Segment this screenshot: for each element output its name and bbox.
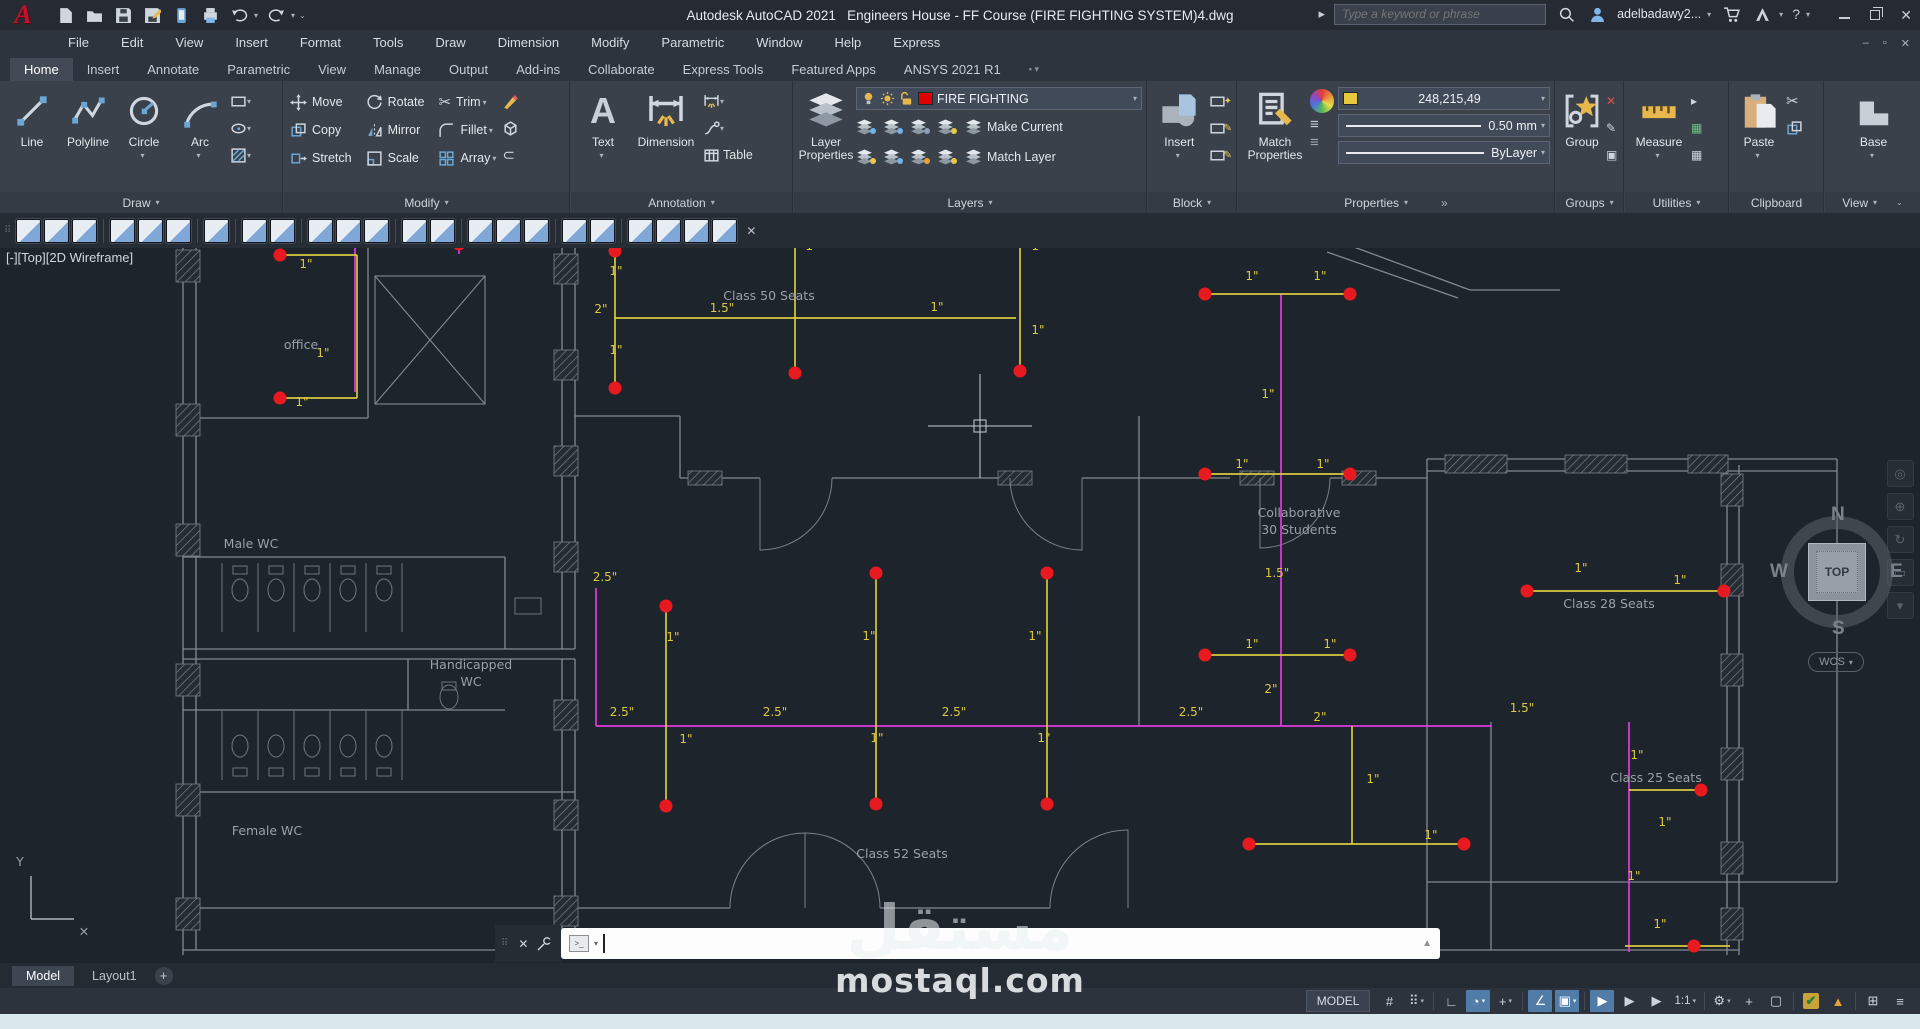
docked-toolbar: ⠿ ✕ bbox=[0, 213, 1920, 248]
menu-edit[interactable]: Edit bbox=[105, 30, 159, 56]
status-toggle-button[interactable]: + bbox=[1737, 990, 1761, 1012]
wall-pier-hatch bbox=[1721, 908, 1743, 940]
toolbar-icon-button[interactable] bbox=[496, 219, 521, 243]
floor-plan-drawing: 1"1"1"1"2"1"21.5"1"1"1"1"1"1"1"1"1"1.5"1… bbox=[0, 248, 1920, 963]
toilet-bowl bbox=[340, 579, 356, 601]
pipe-size-label: 1" bbox=[862, 629, 875, 643]
menu-modify[interactable]: Modify bbox=[575, 30, 645, 56]
layout-tab-bar: Model Layout1 + bbox=[0, 963, 1920, 988]
pipe-size-label: 1" bbox=[299, 257, 312, 271]
modify-panel-footer[interactable]: Modify▾ bbox=[284, 192, 569, 213]
linetype-list-icon[interactable]: ≡ bbox=[1310, 136, 1334, 149]
user-avatar-icon[interactable] bbox=[1586, 3, 1608, 25]
annotation-panel-footer[interactable]: Annotation▾ bbox=[571, 192, 792, 213]
plot-button[interactable] bbox=[199, 4, 221, 26]
room-label: office bbox=[284, 337, 319, 352]
toolbar-icon-button[interactable] bbox=[270, 219, 295, 243]
ribbon-tab-ansys-2021-r1[interactable]: ANSYS 2021 R1 bbox=[890, 58, 1015, 81]
sprinkler-head bbox=[274, 249, 287, 262]
layer-state-icon[interactable] bbox=[937, 147, 957, 167]
rotate-button[interactable]: Rotate bbox=[366, 89, 425, 115]
sprinkler-head bbox=[789, 367, 802, 380]
trim-icon: ✂ bbox=[438, 95, 451, 110]
sprinkler-head bbox=[1243, 838, 1256, 851]
toolbar-icon-button[interactable] bbox=[402, 219, 427, 243]
sprinkler-head bbox=[1718, 585, 1731, 598]
door-swing-arc bbox=[1050, 830, 1128, 908]
redo-button[interactable] bbox=[265, 4, 287, 26]
save-button[interactable] bbox=[112, 4, 134, 26]
wall-line bbox=[1335, 248, 1470, 290]
ucs-x-mark: ✕ bbox=[79, 924, 89, 939]
new-file-button[interactable] bbox=[54, 4, 76, 26]
ribbon-tab-view[interactable]: View bbox=[304, 58, 360, 81]
toolbar-icon-button[interactable] bbox=[468, 219, 493, 243]
toolbar-icon-button[interactable] bbox=[656, 219, 681, 243]
move-button[interactable]: Move bbox=[290, 89, 352, 115]
qat-customize-dropdown[interactable]: ⌄ bbox=[299, 11, 306, 20]
infocenter-collapse-icon[interactable]: ▸ bbox=[1319, 6, 1326, 22]
linetype-combo[interactable]: ByLayer ▾ bbox=[1338, 141, 1550, 164]
room-label: Male WC bbox=[224, 536, 279, 551]
sprinkler-head bbox=[1014, 365, 1027, 378]
status-toggle-button[interactable]: ▶ bbox=[1617, 990, 1641, 1012]
toolbar-icon-button[interactable] bbox=[242, 219, 267, 243]
wall-pier-hatch bbox=[176, 664, 200, 696]
arc-button[interactable]: Arc▾ bbox=[174, 85, 226, 160]
wall-pier-hatch bbox=[1445, 455, 1507, 473]
toolbar-icon-button[interactable] bbox=[138, 219, 163, 243]
sprinkler-head bbox=[1688, 940, 1701, 953]
table-button[interactable]: Table bbox=[703, 143, 753, 167]
clipboard-panel: Paste▾ ✂ Clipboard bbox=[1730, 81, 1824, 213]
lineweight-preview bbox=[1346, 125, 1481, 127]
match-layer-button[interactable]: Match Layer bbox=[965, 144, 1056, 170]
pipe-size-label: 1" bbox=[1313, 269, 1326, 283]
block-panel: Insert▾ ✦✎✎ Block▾ bbox=[1148, 81, 1237, 213]
properties-panel-footer[interactable]: Properties▾» bbox=[1238, 192, 1554, 213]
pipe-size-label: 1" bbox=[1658, 815, 1671, 829]
pipe-size-label: 1" bbox=[1424, 828, 1437, 842]
ribbon-tab-add-ins[interactable]: Add-ins bbox=[502, 58, 574, 81]
menu-format[interactable]: Format bbox=[284, 30, 357, 56]
sprinkler-head bbox=[1041, 567, 1054, 580]
cut-clip-button[interactable]: ✂ bbox=[1786, 89, 1803, 113]
hatch-button[interactable]: ▾ bbox=[230, 143, 251, 167]
recent-commands-icon[interactable]: >_ bbox=[569, 935, 589, 952]
group-button[interactable]: Group bbox=[1562, 85, 1602, 149]
base-button[interactable]: Base▾ bbox=[1848, 85, 1900, 160]
wall-pier-hatch bbox=[1721, 842, 1743, 874]
insert-block-button[interactable]: Insert▾ bbox=[1154, 85, 1205, 160]
wall-pier-hatch bbox=[176, 250, 200, 282]
block-tool-button[interactable]: ✎ bbox=[1209, 143, 1232, 167]
menu-view[interactable]: View bbox=[159, 30, 219, 56]
layer-state-icon[interactable] bbox=[910, 117, 930, 137]
pipe-size-label: 1" bbox=[1627, 869, 1640, 883]
pipe-size-label: 2.5" bbox=[1179, 705, 1204, 719]
menu-window[interactable]: Window bbox=[740, 30, 818, 56]
room-label: WC bbox=[460, 674, 481, 689]
wall-pier-hatch bbox=[554, 350, 578, 380]
toilet-tank bbox=[269, 566, 283, 574]
toolbar-icon-button[interactable] bbox=[44, 219, 69, 243]
leader-button[interactable]: ▾ bbox=[703, 116, 753, 140]
room-label: 30 Students bbox=[1261, 522, 1337, 537]
ribbon-tab-parametric[interactable]: Parametric bbox=[213, 58, 304, 81]
copy-button[interactable]: Copy bbox=[290, 117, 352, 143]
wall-pier-hatch bbox=[176, 524, 200, 556]
pipe-size-label: 1" bbox=[679, 732, 692, 746]
layer-state-icon[interactable] bbox=[856, 147, 876, 167]
toolbar-icon-button[interactable] bbox=[430, 219, 455, 243]
toolbar-icon-button[interactable] bbox=[308, 219, 333, 243]
line-button[interactable]: Line bbox=[6, 85, 58, 149]
menu-draw[interactable]: Draw bbox=[419, 30, 481, 56]
draw-panel: LinePolylineCircle▾Arc▾▾▾▾ Draw▾ bbox=[0, 81, 283, 213]
status-toggle-button[interactable]: 1:1▾ bbox=[1671, 990, 1699, 1012]
menu-insert[interactable]: Insert bbox=[219, 30, 284, 56]
doc-close-icon[interactable]: ✕ bbox=[1901, 37, 1910, 50]
ribbon-tab-output[interactable]: Output bbox=[435, 58, 502, 81]
sprinkler-head bbox=[453, 248, 466, 251]
help-icon[interactable]: ? bbox=[1792, 6, 1800, 22]
doc-restore-icon[interactable]: ▫ bbox=[1883, 37, 1887, 49]
menu-express[interactable]: Express bbox=[877, 30, 956, 56]
ribbon-tab-express-tools[interactable]: Express Tools bbox=[669, 58, 778, 81]
help-dropdown[interactable]: ▾ bbox=[1806, 10, 1810, 19]
layer-properties-button[interactable]: LayerProperties bbox=[800, 85, 852, 162]
toolbar-grip[interactable]: ⠿ bbox=[4, 225, 10, 236]
navbar-tool-button[interactable]: ◎ bbox=[1887, 460, 1914, 487]
wall-pier-hatch bbox=[554, 800, 578, 830]
utility-tool-button[interactable]: ▦ bbox=[1691, 116, 1702, 140]
sprinkler-head bbox=[1199, 288, 1212, 301]
wall-pier-hatch bbox=[1721, 654, 1743, 686]
layer-state-icon[interactable] bbox=[910, 147, 930, 167]
sprinkler-head bbox=[870, 567, 883, 580]
pipe-size-label: 1" bbox=[609, 264, 622, 278]
door-swing-arc bbox=[730, 833, 805, 908]
app-store-cart-icon[interactable] bbox=[1720, 3, 1742, 25]
room-label: Class 28 Seats bbox=[1563, 596, 1654, 611]
erase-button[interactable] bbox=[502, 89, 519, 113]
toolbar-close-icon[interactable]: ✕ bbox=[746, 224, 756, 238]
block-tool-button[interactable]: ✦ bbox=[1209, 89, 1232, 113]
toilet-tank bbox=[233, 566, 247, 574]
tab-layout1[interactable]: Layout1 bbox=[78, 966, 150, 986]
mirror-button[interactable]: Mirror bbox=[366, 117, 425, 143]
toolbar-icon-button[interactable] bbox=[72, 219, 97, 243]
account-dropdown[interactable]: ▾ bbox=[1707, 10, 1711, 19]
status-toggle-button[interactable]: ▣▾ bbox=[1555, 990, 1579, 1012]
rect-button[interactable]: ▾ bbox=[230, 89, 251, 113]
text-button[interactable]: A Text▾ bbox=[577, 85, 629, 160]
linear-dimension-button[interactable]: ▾ bbox=[703, 89, 753, 113]
explode-button[interactable] bbox=[502, 116, 519, 140]
door-swing-arc bbox=[1010, 478, 1082, 550]
polyline-icon bbox=[70, 88, 106, 134]
room-label: Handicapped bbox=[430, 657, 512, 672]
ribbon-display-toggle[interactable]: ▪ ▾ bbox=[1025, 58, 1043, 81]
status-toggle-button[interactable]: ▲ bbox=[1826, 990, 1850, 1012]
wall-pier-hatch bbox=[554, 446, 578, 476]
toilet-tank bbox=[305, 768, 319, 776]
scale-button[interactable]: Scale bbox=[366, 145, 425, 171]
make-current-button[interactable]: Make Current bbox=[965, 114, 1063, 140]
linetype-preview bbox=[1346, 152, 1484, 154]
command-line-bar: ⠿ ✕ >_ ▾ ▲ bbox=[495, 925, 1440, 962]
toolbar-icon-button[interactable] bbox=[684, 219, 709, 243]
toolbar-icon-button[interactable] bbox=[524, 219, 549, 243]
command-input-field[interactable]: >_ ▾ ▲ bbox=[561, 928, 1440, 959]
save-as-button[interactable] bbox=[141, 4, 163, 26]
pipe-size-label: 1" bbox=[1366, 772, 1379, 786]
pipe-size-label: 1" bbox=[1574, 561, 1587, 575]
trim-button[interactable]: ✂Trim▾ bbox=[438, 89, 496, 115]
dimension-button[interactable]: Dimension bbox=[633, 85, 699, 149]
accessible-toilet bbox=[440, 685, 458, 709]
restore-button[interactable] bbox=[1870, 10, 1880, 20]
status-toggle-button[interactable]: ✔ bbox=[1799, 990, 1823, 1012]
match-properties-button[interactable]: MatchProperties bbox=[1244, 85, 1306, 162]
status-toggle-button[interactable]: ▶ bbox=[1644, 990, 1668, 1012]
viewcube-east[interactable]: E bbox=[1890, 561, 1903, 583]
toolbar-icon-button[interactable] bbox=[336, 219, 361, 243]
room-label: Class 52 Seats bbox=[856, 846, 947, 861]
lineweight-list-icon[interactable]: ≡ bbox=[1310, 118, 1334, 131]
group-tool-button[interactable]: ▣ bbox=[1606, 143, 1617, 167]
autodesk-a360-icon[interactable] bbox=[1751, 3, 1773, 25]
fillet-button[interactable]: Fillet▾ bbox=[438, 117, 496, 143]
toolbar-icon-button[interactable] bbox=[204, 219, 229, 243]
status-toggle-button[interactable]: ⚙▾ bbox=[1710, 990, 1734, 1012]
tab-model[interactable]: Model bbox=[12, 966, 74, 986]
pipe-size-label: 1" bbox=[1630, 748, 1643, 762]
menu-tools[interactable]: Tools bbox=[357, 30, 419, 56]
object-color-value: 248,215,49 bbox=[1362, 92, 1537, 106]
ribbon-tab-manage[interactable]: Manage bbox=[360, 58, 435, 81]
layers-panel-footer[interactable]: Layers▾ bbox=[794, 192, 1146, 213]
toilet-tank bbox=[377, 566, 391, 574]
ribbon-tab-featured-apps[interactable]: Featured Apps bbox=[777, 58, 890, 81]
layer-state-icon[interactable] bbox=[937, 117, 957, 137]
group-tool-button[interactable]: ✕ bbox=[1606, 89, 1617, 113]
toolbar-icon-button[interactable] bbox=[590, 219, 615, 243]
viewcube[interactable]: N W E S TOP bbox=[1775, 510, 1900, 635]
line-icon bbox=[14, 88, 50, 134]
sprinkler-head bbox=[1344, 468, 1357, 481]
room-label: Female WC bbox=[232, 823, 303, 838]
command-customize-wrench-icon[interactable] bbox=[536, 936, 552, 952]
document-window-controls: – ▫ ✕ bbox=[1863, 30, 1910, 56]
utility-tool-button[interactable]: ▸ bbox=[1691, 89, 1702, 113]
toilet-bowl bbox=[376, 735, 392, 757]
wall-pier-hatch bbox=[554, 542, 578, 572]
sprinkler-head bbox=[660, 800, 673, 813]
a360-dropdown[interactable]: ▾ bbox=[1779, 10, 1783, 19]
model-space-toggle[interactable]: MODEL bbox=[1306, 990, 1371, 1012]
command-text-cursor bbox=[603, 934, 605, 953]
sprinkler-head bbox=[609, 248, 622, 258]
status-toggle-button[interactable]: # bbox=[1377, 990, 1401, 1012]
offset-button[interactable]: ⊂ bbox=[502, 143, 519, 167]
toolbar-icon-button[interactable] bbox=[166, 219, 191, 243]
toolbar-icon-button[interactable] bbox=[110, 219, 135, 243]
sprinkler-head bbox=[1695, 784, 1708, 797]
undo-button[interactable] bbox=[228, 4, 250, 26]
toolbar-icon-button[interactable] bbox=[712, 219, 737, 243]
infocenter: ▸ adelbadawy2... ▾ ▾ ? ▾ bbox=[1319, 3, 1810, 25]
layer-combo-caret[interactable]: ▾ bbox=[1133, 94, 1137, 103]
viewport-controls-label[interactable]: [-][Top][2D Wireframe] bbox=[6, 250, 133, 265]
status-toggle-button[interactable]: ≡ bbox=[1888, 990, 1912, 1012]
toilet-bowl bbox=[232, 579, 248, 601]
toolbar-icon-button[interactable] bbox=[562, 219, 587, 243]
circle-icon bbox=[126, 88, 162, 134]
toilet-bowl bbox=[304, 579, 320, 601]
pipe-size-label: 1" bbox=[1323, 637, 1336, 651]
menu-parametric[interactable]: Parametric bbox=[645, 30, 740, 56]
block-tool-button[interactable]: ✎ bbox=[1209, 116, 1232, 140]
wall-pier-hatch bbox=[688, 471, 722, 485]
toilet-bowl bbox=[340, 735, 356, 757]
viewcube-south[interactable]: S bbox=[1832, 618, 1845, 640]
wall-pier-hatch bbox=[554, 896, 578, 926]
group-tool-button[interactable]: ✎ bbox=[1606, 116, 1617, 140]
title-bar: A ▾ ▾ ⌄ Autodesk AutoCAD 2021 Engineers … bbox=[0, 0, 1920, 30]
layer-color-swatch bbox=[918, 92, 933, 105]
layer-select-combo[interactable]: FIRE FIGHTING ▾ bbox=[856, 87, 1142, 110]
paste-button[interactable]: Paste▾ bbox=[1736, 85, 1782, 160]
utility-tool-button[interactable]: ▦ bbox=[1691, 143, 1702, 167]
circle-button[interactable]: Circle▾ bbox=[118, 85, 170, 160]
status-toggle-button[interactable]: ▶ bbox=[1590, 990, 1614, 1012]
open-from-web-mobile-button[interactable] bbox=[170, 4, 192, 26]
toilet-bowl bbox=[268, 735, 284, 757]
toilet-tank bbox=[269, 768, 283, 776]
pipe-size-label: 2" bbox=[1264, 682, 1277, 696]
viewcube-top-face[interactable]: TOP bbox=[1808, 543, 1866, 601]
status-toggle-button[interactable]: ∟ bbox=[1439, 990, 1463, 1012]
open-file-button[interactable] bbox=[83, 4, 105, 26]
doc-minimize-icon[interactable]: – bbox=[1863, 37, 1869, 49]
utilities-panel: Measure▾ ▸▦▦ Utilities▾ bbox=[1625, 81, 1729, 213]
signed-in-username[interactable]: adelbadawy2... bbox=[1617, 7, 1701, 21]
status-toggle-button[interactable]: +▾ bbox=[1493, 990, 1517, 1012]
wcs-dropdown[interactable]: WCS▾ bbox=[1808, 652, 1864, 672]
status-toggle-button[interactable]: ⠿▾ bbox=[1404, 990, 1428, 1012]
pipe-size-label: 1" bbox=[609, 343, 622, 357]
toilet-tank bbox=[377, 768, 391, 776]
measure-button[interactable]: Measure▾ bbox=[1631, 85, 1687, 160]
groups-panel-footer[interactable]: Groups▾ bbox=[1556, 192, 1623, 213]
layer-state-icon[interactable] bbox=[883, 147, 903, 167]
new-layout-button[interactable]: + bbox=[155, 967, 173, 985]
pipe-size-label: 1" bbox=[1245, 637, 1258, 651]
undo-dropdown[interactable]: ▾ bbox=[254, 11, 258, 20]
wall-pier-hatch bbox=[998, 471, 1032, 485]
close-button[interactable]: ✕ bbox=[1900, 7, 1912, 24]
view-panel-footer[interactable]: View▾⌄ bbox=[1825, 192, 1920, 213]
groups-panel: Group ✕✎▣ Groups▾ bbox=[1556, 81, 1624, 213]
status-toggle-button[interactable]: ▢ bbox=[1764, 990, 1788, 1012]
copy-clip-button[interactable] bbox=[1786, 116, 1803, 140]
menu-help[interactable]: Help bbox=[819, 30, 878, 56]
wall-pier-hatch bbox=[554, 700, 578, 730]
pipe-size-label: 2" bbox=[1313, 710, 1326, 724]
ellipse-button[interactable]: ▾ bbox=[230, 116, 251, 140]
pipe-size-label: 1" bbox=[1673, 573, 1686, 587]
window-controls: ✕ bbox=[1839, 0, 1912, 30]
pipe-size-label: 1" bbox=[1653, 917, 1666, 931]
stretch-button[interactable]: Stretch bbox=[290, 145, 352, 171]
sprinkler-head bbox=[660, 600, 673, 613]
sprinkler-head bbox=[870, 798, 883, 811]
command-bar-grip[interactable]: ⠿ ✕ bbox=[495, 925, 561, 962]
bottom-strip bbox=[0, 1014, 1920, 1029]
layer-state-icon[interactable] bbox=[856, 117, 876, 137]
wc-fixture bbox=[515, 598, 541, 614]
clipboard-panel-footer[interactable]: Clipboard bbox=[1730, 192, 1823, 213]
toolbar-icon-button[interactable] bbox=[628, 219, 653, 243]
ribbon-tab-insert[interactable]: Insert bbox=[73, 58, 134, 81]
status-toggle-button[interactable]: ◔▾ bbox=[1466, 990, 1490, 1012]
block-panel-footer[interactable]: Block▾ bbox=[1148, 192, 1236, 213]
pipe-size-label: 1" bbox=[316, 346, 329, 360]
array-button[interactable]: Array▾ bbox=[438, 145, 496, 171]
redo-dropdown[interactable]: ▾ bbox=[291, 11, 295, 20]
search-icon[interactable] bbox=[1555, 3, 1577, 25]
layer-state-icon[interactable] bbox=[883, 117, 903, 137]
utilities-panel-footer[interactable]: Utilities▾ bbox=[1625, 192, 1728, 213]
pipe-size-label: 1.5" bbox=[710, 301, 735, 315]
toolbar-icon-button[interactable] bbox=[16, 219, 41, 243]
object-color-combo[interactable]: 248,215,49 ▾ bbox=[1338, 87, 1550, 110]
toolbar-icon-button[interactable] bbox=[364, 219, 389, 243]
quick-access-toolbar: ▾ ▾ ⌄ bbox=[54, 4, 306, 26]
draw-panel-footer[interactable]: Draw▾ bbox=[0, 192, 282, 213]
wall-pier-hatch bbox=[1721, 748, 1743, 780]
sprinkler-head bbox=[1344, 649, 1357, 662]
status-toggle-button[interactable]: ⊞ bbox=[1861, 990, 1885, 1012]
ribbon-tab-collaborate[interactable]: Collaborate bbox=[574, 58, 669, 81]
pipe-size-label: 2.5" bbox=[942, 705, 967, 719]
ribbon-tab-home[interactable]: Home bbox=[10, 58, 73, 81]
menu-file[interactable]: File bbox=[52, 30, 105, 56]
wall-pier-hatch bbox=[554, 254, 578, 284]
ucs-y-label: Y bbox=[15, 854, 24, 869]
infocenter-search-input[interactable] bbox=[1334, 4, 1546, 25]
view-panel: Base▾ View▾⌄ bbox=[1825, 81, 1920, 213]
linetype-value: ByLayer bbox=[1491, 146, 1537, 160]
command-close-icon[interactable]: ✕ bbox=[518, 937, 528, 951]
command-history-up-icon[interactable]: ▲ bbox=[1422, 938, 1432, 949]
autocad-app-logo[interactable]: A bbox=[0, 0, 46, 30]
lineweight-combo[interactable]: 0.50 mm ▾ bbox=[1338, 114, 1550, 137]
viewcube-west[interactable]: W bbox=[1770, 561, 1788, 583]
status-toggle-button[interactable]: ∠ bbox=[1528, 990, 1552, 1012]
drawing-canvas[interactable]: [-][Top][2D Wireframe] 1"1"1"1"2"1"21.5"… bbox=[0, 248, 1920, 963]
ribbon-tab-annotate[interactable]: Annotate bbox=[133, 58, 213, 81]
minimize-button[interactable] bbox=[1839, 11, 1850, 19]
color-wheel-icon[interactable] bbox=[1310, 89, 1334, 113]
pipe-size-label: 1" bbox=[666, 630, 679, 644]
polyline-button[interactable]: Polyline bbox=[62, 85, 114, 149]
command-dropdown-caret[interactable]: ▾ bbox=[594, 939, 598, 948]
viewcube-north[interactable]: N bbox=[1831, 504, 1845, 526]
menu-dimension[interactable]: Dimension bbox=[482, 30, 575, 56]
